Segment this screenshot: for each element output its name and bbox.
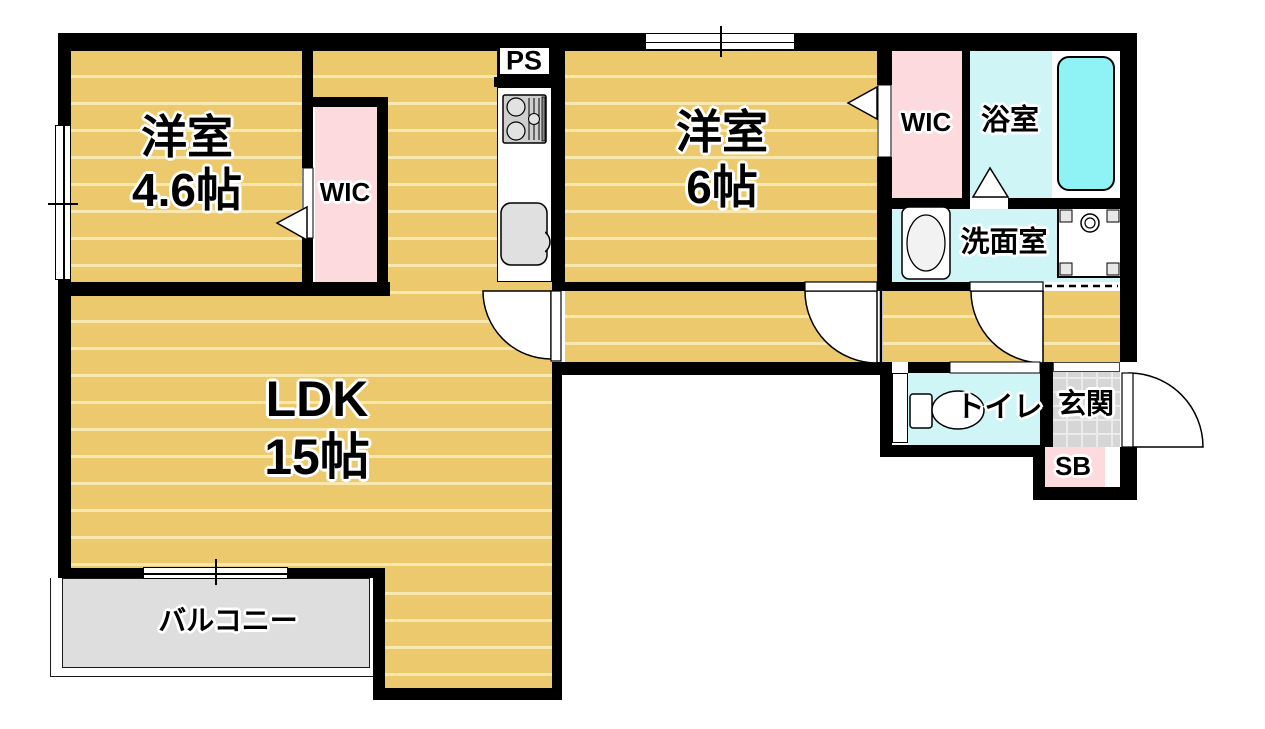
door-swing-ldk — [483, 291, 561, 361]
room-western-6-label: 洋室 — [676, 109, 768, 155]
bathroom-door-arrow-icon — [970, 168, 1008, 209]
floor-plan: 洋室 4.6帖 WIC PS 洋室 6帖 WIC 浴室 洗面室 LDK 15帖 … — [0, 0, 1265, 729]
balcony-label: バルコニー — [158, 607, 297, 635]
bathroom-label: 浴室 — [981, 107, 1039, 136]
toilet-label: トイレ — [955, 394, 1042, 423]
gas-stove-icon — [503, 95, 546, 143]
wic-right-door-arrow-icon — [848, 85, 891, 157]
pipe-space-label: PS — [506, 48, 542, 75]
ldk-label: LDK — [266, 374, 369, 424]
vanity-sink-icon — [902, 207, 950, 279]
door-swing-hall — [805, 282, 881, 363]
entrance-label: 玄関 — [1058, 390, 1114, 418]
door-swing-entrance — [1122, 373, 1203, 447]
washing-machine-pan-icon — [1058, 208, 1121, 277]
room-western-4-6-label: 洋室 — [141, 114, 233, 160]
washroom-label: 洗面室 — [960, 229, 1047, 258]
wic-left-door-arrow-icon — [277, 168, 313, 240]
shoe-box-label: SB — [1055, 453, 1091, 479]
kitchen-sink-icon — [501, 203, 550, 265]
room-western-4-6-size: 4.6帖 — [132, 167, 242, 213]
door-swing-washroom — [970, 282, 1118, 363]
toilet-door-panel — [950, 362, 1040, 373]
wic-right-label: WIC — [901, 109, 952, 135]
room-western-6-size: 6帖 — [686, 164, 758, 210]
wic-left-label: WIC — [320, 179, 371, 205]
ldk-size: 15帖 — [264, 432, 370, 482]
